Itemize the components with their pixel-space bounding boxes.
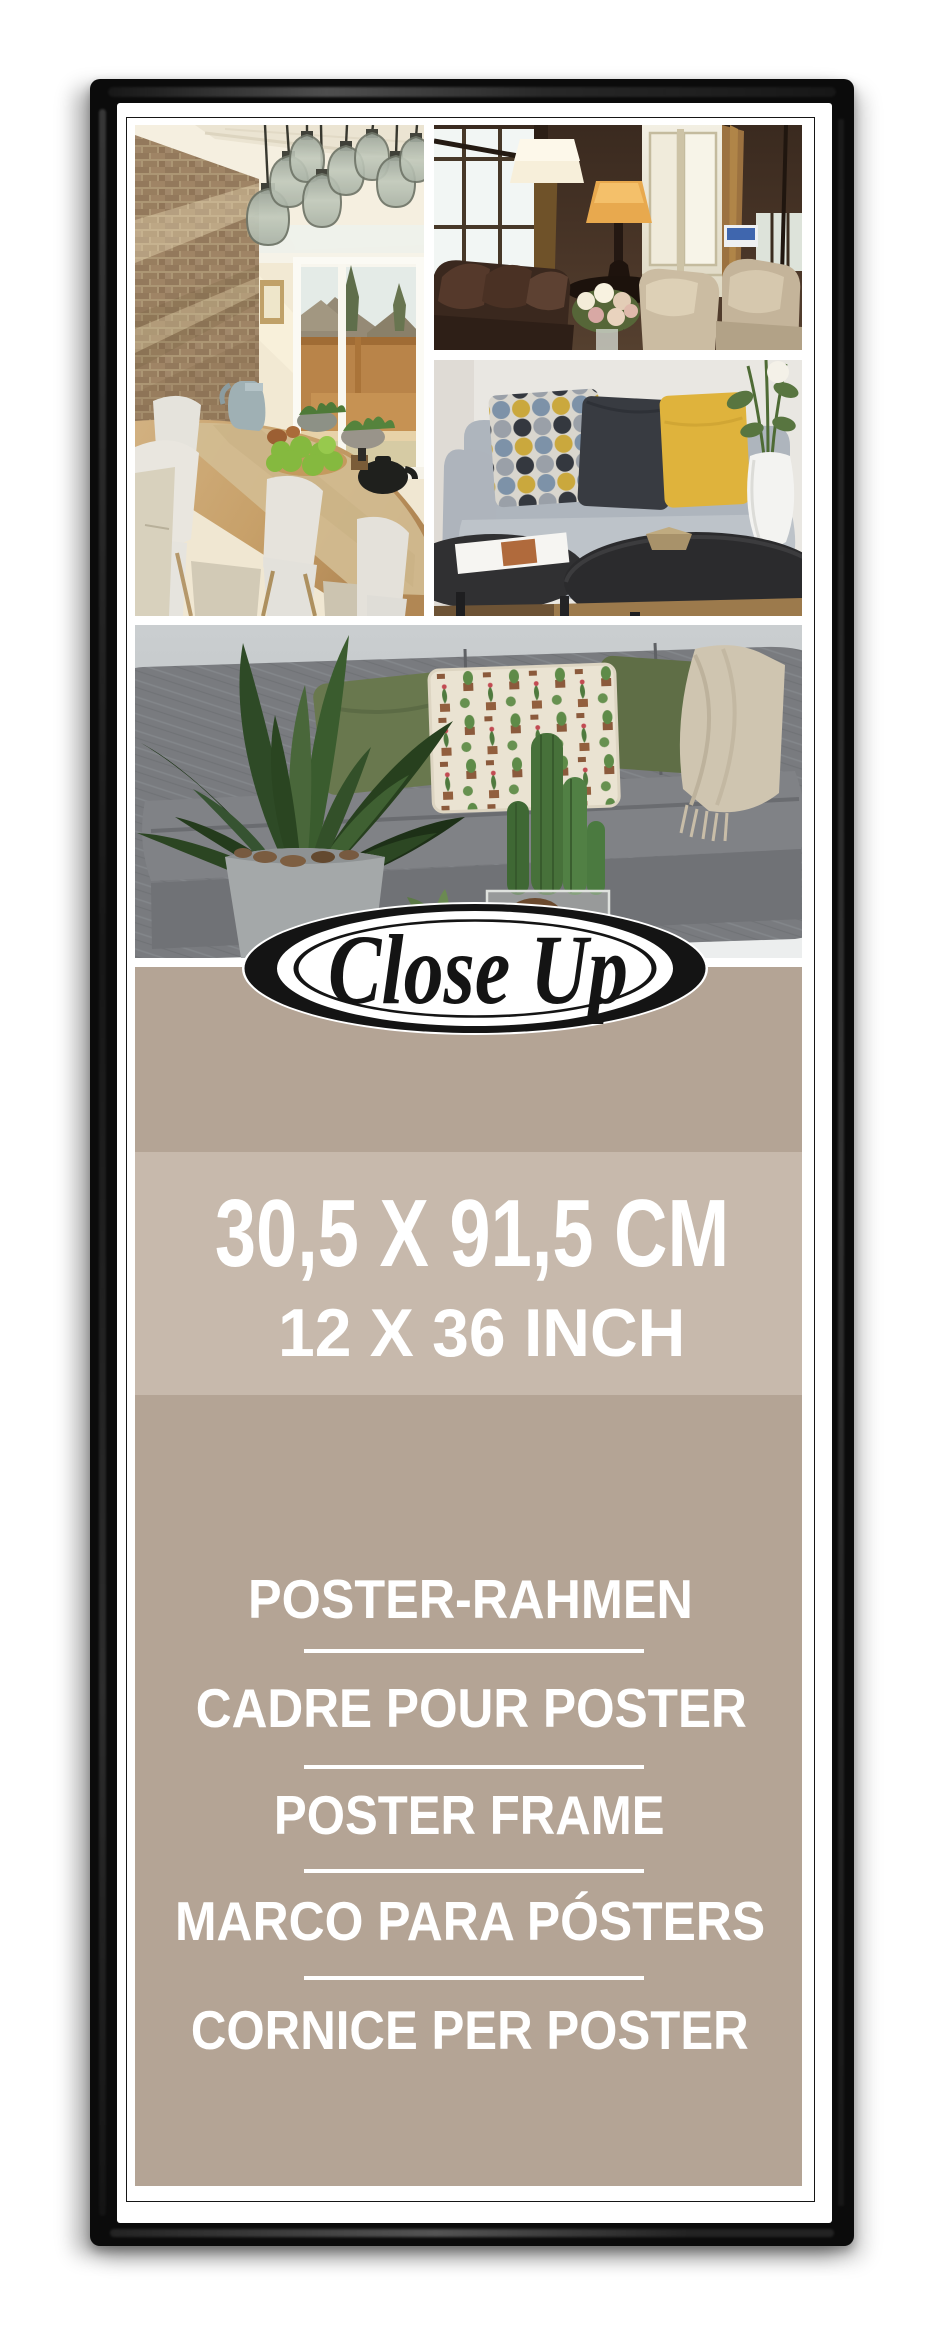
svg-text:Close Up: Close Up xyxy=(328,914,628,1026)
